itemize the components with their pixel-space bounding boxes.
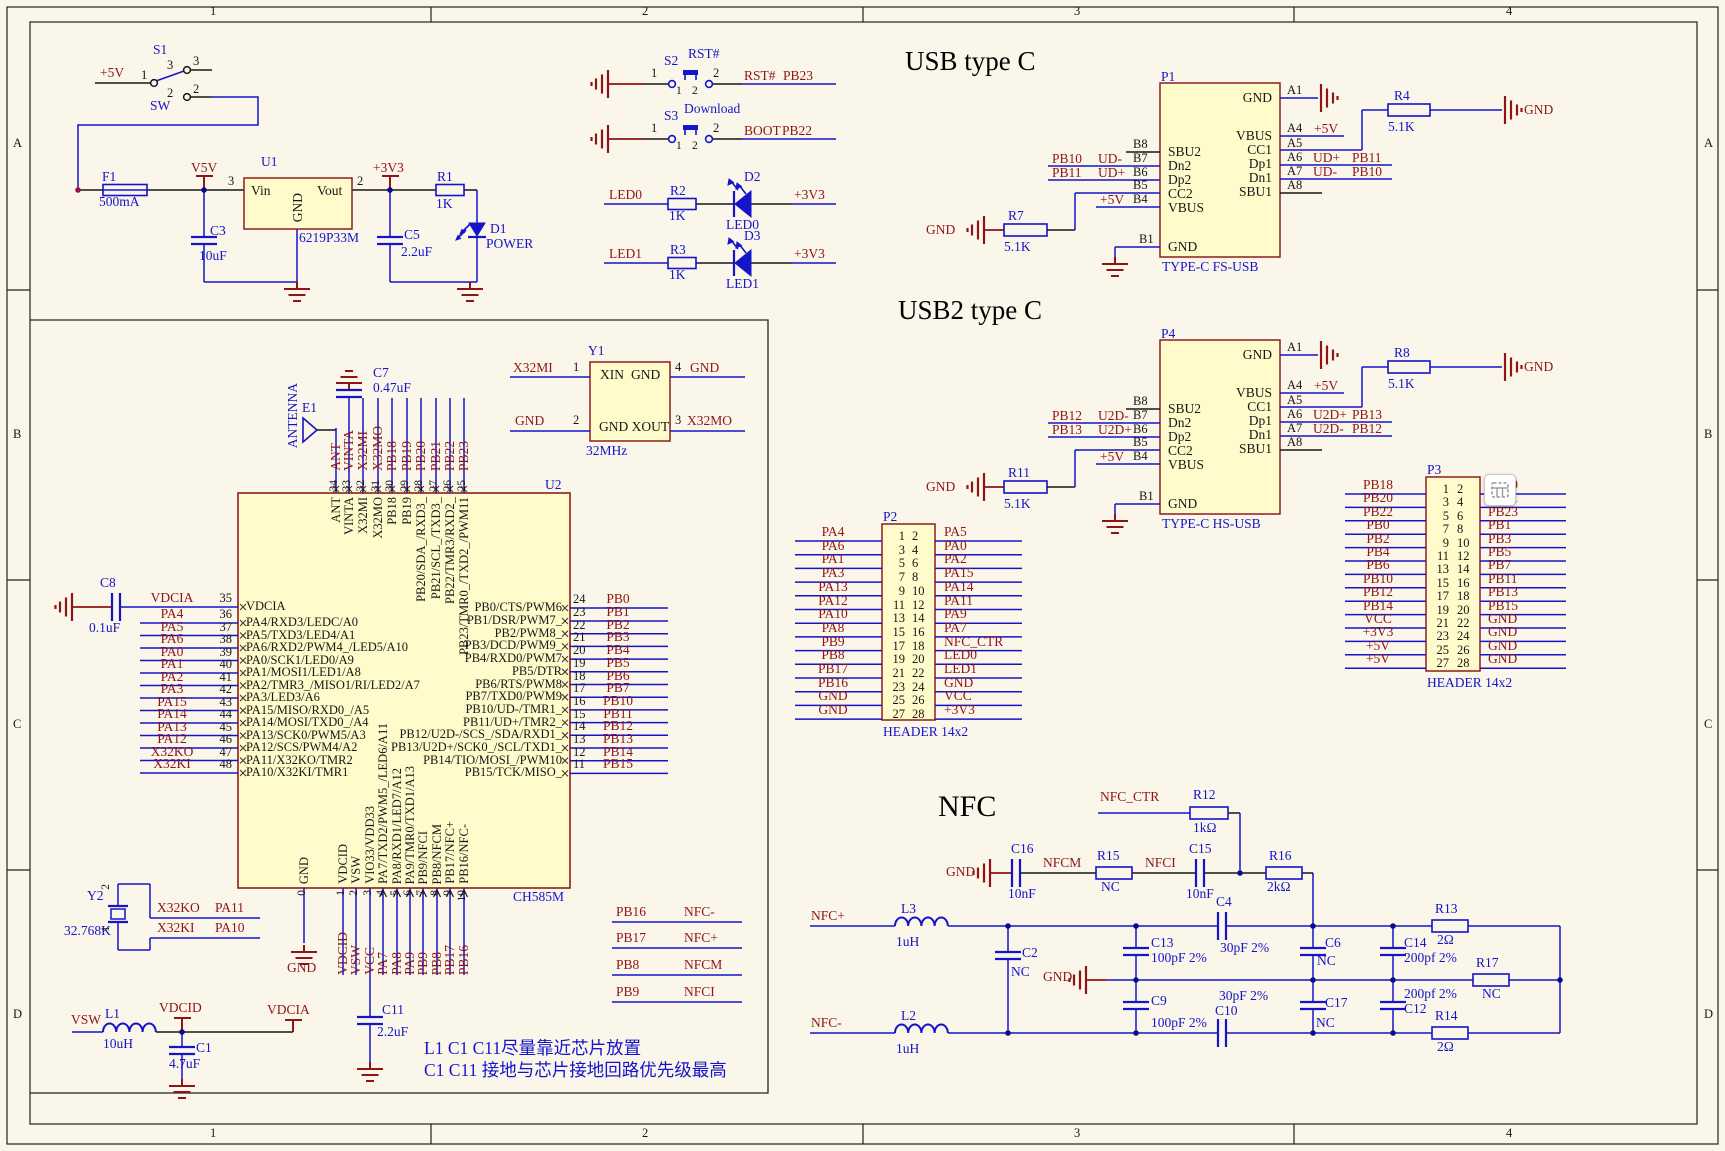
header-pin-number: 26: [912, 694, 932, 707]
net-label: 4: [1506, 5, 1512, 18]
power-v5v: V5V: [191, 161, 217, 175]
buttons-d3_ref: D3: [744, 229, 761, 243]
power-s1_p3o: 3: [193, 55, 199, 68]
header-net: PA12: [788, 594, 878, 608]
mcu-bottom-net: PB9: [416, 952, 430, 975]
schematic-page: USB type C USB2 type C NFC L1 C1 C11尽量靠近…: [0, 0, 1725, 1151]
nfc-c4_val: 30pF 2%: [1220, 941, 1269, 955]
net-label: B8: [1133, 395, 1148, 408]
nfc-r12_val: 1kΩ: [1193, 821, 1217, 835]
power-s1_p3i: 3: [167, 59, 173, 72]
mcu-pin-name: PB17/NFC+: [444, 821, 457, 884]
header-pin-number: 16: [1457, 577, 1477, 590]
mcu-pin-name: PA3/LED3/A6: [246, 691, 320, 704]
mcu-pin-number: 6: [403, 890, 415, 896]
nfc-c4_ref: C4: [1216, 895, 1232, 909]
mcu-pin-number: 18: [573, 670, 586, 683]
component-value: TYPE-C HS-USB: [1162, 517, 1261, 531]
nfc-c15_ref: C15: [1189, 842, 1212, 856]
mcu-pin-name: PB12/U2D-/SCS_/SDA/RXD1_: [320, 728, 562, 741]
net-label: A8: [1287, 179, 1302, 192]
usb-pin-name: SBU2: [1168, 402, 1201, 416]
header-net: +3V3: [1334, 625, 1422, 639]
net-label: PB11: [1052, 166, 1082, 180]
nfc-c14_ref: C14: [1404, 936, 1427, 950]
mcu-pin-name: X32MI: [357, 497, 370, 534]
header-pin-number: 9: [885, 585, 905, 598]
header-pin-number: 13: [885, 612, 905, 625]
mcu-bottom-net: VSW: [349, 945, 363, 975]
bl-gnd0: GND: [287, 961, 316, 975]
mcu-pin-name: VDCIA: [246, 600, 286, 613]
bl-y2_p1: 1: [101, 926, 113, 932]
mcu-pin-number: 4: [376, 890, 388, 896]
net-label: B: [1704, 428, 1712, 441]
mcu-pin-name: PB10/UD-/TMR1_: [320, 703, 562, 716]
net-label: PB13: [1352, 408, 1382, 422]
power-c5_ref: C5: [404, 228, 420, 242]
mcu-pin-number: 35: [198, 592, 232, 605]
mcu-pin-name: PB23/TMR0_/TXD2_/PWM11: [458, 497, 471, 655]
net-label: A6: [1287, 408, 1302, 421]
nfc-ctr: NFC_CTR: [1100, 790, 1159, 804]
buttons-led0_vcc: +3V3: [794, 188, 825, 202]
nfc-c9_val: 100pF 2%: [1151, 1016, 1207, 1030]
buttons-s3_ref: S3: [664, 109, 678, 123]
header-pin-number: 17: [885, 640, 905, 653]
buttons-d3_val: LED1: [726, 277, 759, 291]
component-value: 5.1K: [1388, 377, 1415, 391]
net-label: UD-: [1098, 152, 1122, 166]
bl-l1_ref: L1: [105, 1007, 120, 1021]
mcu-pin-number: 15: [573, 708, 586, 721]
nfc-c15_val: 10nF: [1186, 887, 1214, 901]
buttons-d2_ref: D2: [744, 170, 761, 184]
bl-y2_ref: Y2: [87, 889, 104, 903]
header-pin-number: 25: [1429, 644, 1449, 657]
net-label: NFC-: [684, 905, 715, 919]
mcu-pin-name: PB19: [401, 497, 414, 525]
net-label: PB13: [1052, 423, 1082, 437]
net-label: UD+: [1098, 166, 1125, 180]
component-value: HEADER 14x2: [883, 725, 968, 739]
nfc-nfcn: NFC-: [811, 1016, 842, 1030]
mcu-pin-name: PB6/RTS/PWM8: [320, 678, 562, 691]
bl-y2_p2: 2: [101, 884, 113, 890]
header-pin-number: 23: [1429, 630, 1449, 643]
nfc-section-title: NFC: [938, 792, 996, 822]
header-net: VCC: [944, 689, 972, 703]
header-pin-number: 15: [1429, 577, 1449, 590]
y1-ref: Y1: [588, 344, 605, 358]
nfc-r14_val: 2Ω: [1437, 1040, 1454, 1054]
mcu-pin-name: ANT: [330, 497, 343, 523]
net-label: UD-: [1313, 165, 1337, 179]
net-label: A6: [1287, 151, 1302, 164]
mcu-pin-number: 16: [573, 695, 586, 708]
net-label: PB9: [616, 985, 639, 999]
mcu-pin-name: PB20/SDA_/RXD3_: [415, 497, 428, 602]
mcu-pin-number: 31: [371, 480, 383, 492]
mcu-pin-name: PB0/CTS/PWM6: [320, 601, 562, 614]
bl-pa10: PA10: [215, 921, 245, 935]
mcu-pin-number: 48: [198, 758, 232, 771]
usb-pin-name: Dp1: [1200, 414, 1272, 428]
bl-pa11: PA11: [215, 901, 244, 915]
nfc-c12_ref: C12: [1404, 1002, 1427, 1016]
mcu-top-net: X32MO: [371, 426, 385, 471]
mcu-top-net: PB23: [457, 441, 471, 471]
component-ref: P1: [1161, 70, 1175, 84]
net-label: +5V: [1100, 193, 1124, 207]
power-u1_vout: Vout: [317, 184, 342, 198]
nfc-nfcm: NFCM: [1043, 856, 1081, 870]
mcu-pin-name: PB22/TMR3/RXD2_: [444, 497, 457, 604]
mcu-pin-name: PB15/TCK/MISO_: [320, 766, 562, 779]
buttons-r2_ref: R2: [670, 184, 686, 198]
mcu-top-net: PB18: [385, 441, 399, 471]
header-pin-number: 27: [885, 708, 905, 721]
mcu-pin-number: 22: [573, 619, 586, 632]
nfc-r15_ref: R15: [1097, 849, 1120, 863]
header-pin-number: 28: [912, 708, 932, 721]
header-pin-number: 3: [885, 544, 905, 557]
buttons-led0_net: LED0: [609, 188, 642, 202]
mcu-antenna: ANTENNA: [286, 383, 300, 448]
power-f1_val: 500mA: [99, 195, 140, 209]
component-value: 5.1K: [1004, 497, 1031, 511]
mcu-pin-number: 29: [400, 480, 412, 492]
mcu-pin-name: GND: [298, 857, 311, 884]
header-net: +5V: [1334, 652, 1422, 666]
buttons-s3_p1i: 1: [676, 141, 682, 153]
nfc-c13_val: 100pF 2%: [1151, 951, 1207, 965]
header-net: PA0: [944, 539, 967, 553]
mcu-pin-number: 11: [573, 758, 585, 771]
component-value: CH585M: [513, 890, 564, 904]
header-net: GND: [1488, 625, 1517, 639]
header-pin-number: 25: [885, 694, 905, 707]
header-pin-number: 18: [1457, 590, 1477, 603]
header-pin-number: 2: [912, 530, 932, 543]
nfc-c6_ref: C6: [1325, 936, 1341, 950]
net-label: 2: [642, 1127, 648, 1140]
mcu-pin-name: PB5/DTR: [320, 665, 562, 678]
mcu-pin-name: VINTA: [343, 497, 356, 535]
net-label: A: [13, 137, 22, 150]
grid-selection-icon[interactable]: [1484, 474, 1516, 506]
nfc-c17_val: NC: [1316, 1016, 1335, 1030]
usb-pin-name: SBU1: [1200, 442, 1272, 456]
header-net: +3V3: [944, 703, 975, 717]
usb-pin-name: VBUS: [1200, 129, 1272, 143]
buttons-s2_val: RST#: [688, 47, 720, 61]
header-pin-number: 17: [1429, 590, 1449, 603]
mcu-pin-name: PA9/TMR0/TXD1/A13: [404, 766, 417, 884]
component-ref: R7: [1008, 209, 1024, 223]
mcu-pin-name: PB21/SCL_/TXD3_: [430, 497, 443, 599]
net-label: A1: [1287, 84, 1302, 97]
nfc-r17_val: NC: [1482, 987, 1501, 1001]
net-label: PB16: [616, 905, 646, 919]
net-label: B5: [1133, 436, 1148, 449]
buttons-r3_val: 1K: [669, 268, 686, 282]
buttons-r2_val: 1K: [669, 209, 686, 223]
buttons-s2_p2: 2: [713, 67, 719, 80]
net-label: B1: [1139, 233, 1154, 246]
component-value: HEADER 14x2: [1427, 676, 1512, 690]
header-pin-number: 7: [885, 571, 905, 584]
buttons-s2_net2: PB23: [783, 69, 813, 83]
net-label: +5V: [1100, 450, 1124, 464]
mcu-pin-name: PB2/PWM8_: [320, 627, 562, 640]
net-label: PB12: [1052, 409, 1082, 423]
y1-n1: X32MI: [513, 361, 553, 375]
mcu-top-net: PB21: [429, 441, 443, 471]
power-u1_ref: U1: [261, 155, 278, 169]
mcu-pin-number: 12: [573, 746, 586, 759]
power-c5_val: 2.2uF: [401, 245, 432, 259]
net-label: C: [1704, 718, 1712, 731]
bl-c11_val: 2.2uF: [377, 1025, 408, 1039]
header-pin-number: 28: [1457, 657, 1477, 670]
header-pin-number: 6: [912, 557, 932, 570]
power-p3v3: +3V3: [373, 161, 404, 175]
power-u1_val: 6219P33M: [299, 231, 359, 245]
component-value: TYPE-C FS-USB: [1162, 260, 1258, 274]
mcu-pin-number: 1: [336, 890, 348, 896]
buttons-s2_net1: RST#: [744, 69, 776, 83]
header-pin-number: 20: [912, 653, 932, 666]
mcu-pin-name: PB13/U2D+/SCK0_/SCL/TXD1_: [320, 741, 562, 754]
usb2-section-title: USB2 type C: [898, 297, 1042, 324]
net-label: 3: [1074, 5, 1080, 18]
power-u1_vin: Vin: [251, 184, 270, 198]
mcu-c8_val: 0.1uF: [89, 621, 120, 635]
bl-vdcid: VDCID: [159, 1001, 202, 1015]
header-pin-number: 7: [1429, 523, 1449, 536]
usb-pin-name: Dp1: [1200, 157, 1272, 171]
y1-p1: 1: [573, 361, 579, 374]
header-net: PA10: [788, 607, 878, 621]
header-net: PA14: [944, 580, 974, 594]
header-pin-number: 22: [912, 667, 932, 680]
header-net: PB20: [1334, 491, 1422, 505]
mcu-top-net: PB22: [443, 441, 457, 471]
header-net: PA2: [944, 552, 967, 566]
header-pin-number: 24: [1457, 630, 1477, 643]
header-net: PB17: [788, 662, 878, 676]
nfc-r17_ref: R17: [1476, 956, 1499, 970]
mcu-c8_ref: C8: [100, 576, 116, 590]
component-ref: R4: [1394, 89, 1410, 103]
mcu-pin-name: PB3/DCD/PWM9_: [320, 639, 562, 652]
header-pin-number: 20: [1457, 604, 1477, 617]
power-c3_val: 10uF: [199, 249, 227, 263]
nfc-r15_val: NC: [1101, 880, 1120, 894]
net-label: B5: [1133, 179, 1148, 192]
nfc-nfci: NFCI: [1145, 856, 1176, 870]
mcu-c7_ref: C7: [373, 366, 389, 380]
usb1-section-title: USB type C: [905, 48, 1036, 75]
usb-pin-name: GND: [1168, 240, 1197, 254]
net-label: B4: [1133, 193, 1148, 206]
placement-note-line2: C1 C11 接地与芯片接地回路优先级最高: [424, 1062, 727, 1080]
mcu-pin-number: 9: [443, 890, 455, 896]
header-pin-number: 2: [1457, 483, 1477, 496]
placement-note-line1: L1 C1 C11尽量靠近芯片放置: [424, 1040, 641, 1058]
mcu-pin-number: 13: [573, 733, 586, 746]
mcu-pin-name: PB14/TIO/MOSI_/PWM10: [320, 754, 562, 767]
mcu-bottom-net: PB17: [443, 945, 457, 975]
mcu-pin-number: 10: [457, 890, 469, 902]
bl-l1_val: 10uH: [103, 1037, 133, 1051]
header-pin-number: 9: [1429, 537, 1449, 550]
net-label: A4: [1287, 379, 1302, 392]
header-pin-number: 4: [1457, 496, 1477, 509]
mcu-top-net: PB20: [414, 441, 428, 471]
header-pin-number: 21: [885, 667, 905, 680]
power-r1_ref: R1: [437, 170, 453, 184]
power-s1_ref: S1: [153, 43, 167, 57]
buttons-s3_net2: PB22: [782, 124, 812, 138]
mcu-pin-name: PB1/DSR/PWM7_: [320, 614, 562, 627]
net-label: A4: [1287, 122, 1302, 135]
mcu-pin-number: 20: [573, 644, 586, 657]
usb-pin-name: CC2: [1168, 444, 1193, 458]
power-u1_gnd: GND: [291, 193, 305, 222]
mcu-pin-name: VSW: [350, 856, 363, 884]
header-pin-number: 4: [912, 544, 932, 557]
usb-pin-name: Dn1: [1200, 428, 1272, 442]
header-pin-number: 21: [1429, 617, 1449, 630]
header-net: GND: [788, 689, 878, 703]
net-label: A: [1704, 137, 1713, 150]
usb-pin-name: VBUS: [1200, 386, 1272, 400]
header-net: PB6: [1334, 558, 1422, 572]
component-ref: U2: [545, 478, 562, 492]
header-pin-number: 8: [1457, 523, 1477, 536]
mcu-pin-number: 3: [363, 890, 375, 896]
buttons-led1_net: LED1: [609, 247, 642, 261]
header-net: GND: [944, 676, 973, 690]
header-net: PA13: [788, 580, 878, 594]
buttons-s2_p1: 1: [651, 67, 657, 80]
header-pin-number: 10: [1457, 537, 1477, 550]
header-net: PA11: [944, 594, 973, 608]
net-label: GND: [1524, 103, 1553, 117]
nfc-c10_ref: C10: [1215, 1004, 1238, 1018]
net-label: PB11: [1352, 151, 1382, 165]
header-pin-number: 1: [885, 530, 905, 543]
mcu-pin-name: PA7/TXD2/PWM5_/LED6/A11: [377, 723, 390, 884]
net-label: 4: [1506, 1127, 1512, 1140]
y1-n3: X32MO: [687, 414, 732, 428]
component-ref: P3: [1427, 463, 1441, 477]
usb-pin-name: GND: [1200, 91, 1272, 105]
mcu-top-net: VINTA: [342, 430, 356, 471]
net-label: +5V: [1314, 379, 1338, 393]
mcu-pin-number: 0: [297, 890, 309, 896]
mcu-pin-name: PB8/NFCM: [431, 824, 444, 884]
buttons-s3_p2: 2: [713, 122, 719, 135]
mcu-right-net: PB15: [582, 757, 654, 771]
mcu-pin-name: VIO33/VDD33: [364, 806, 377, 884]
buttons-s2_ref: S2: [664, 54, 678, 68]
header-net: PB8: [788, 648, 878, 662]
nfc-l2_ref: L2: [901, 1009, 916, 1023]
nfc-gnd2: GND: [1043, 970, 1072, 984]
power-s1_sw: SW: [150, 99, 170, 113]
net-label: A5: [1287, 137, 1302, 150]
power-s1_p1: 1: [141, 69, 147, 82]
power-u1_pin3: 3: [228, 175, 234, 188]
header-pin-number: 18: [912, 640, 932, 653]
net-label: U2D-: [1313, 422, 1344, 436]
buttons-s3_p1: 1: [651, 122, 657, 135]
power-r1_val: 1K: [436, 197, 453, 211]
header-net: LED0: [944, 648, 977, 662]
y1-p4: 4: [675, 361, 681, 374]
header-pin-number: 23: [885, 681, 905, 694]
net-label: PB10: [1052, 152, 1082, 166]
y1-n4: GND: [690, 361, 719, 375]
power-d1_ref: D1: [490, 222, 507, 236]
header-pin-number: 11: [1429, 550, 1449, 563]
usb-pin-name: Dn2: [1168, 416, 1191, 430]
header-pin-number: 14: [1457, 563, 1477, 576]
nfc-c2_ref: C2: [1022, 946, 1038, 960]
header-pin-number: 19: [885, 653, 905, 666]
y1-gndxout: GND XOUT: [599, 420, 669, 434]
net-label: NFCI: [684, 985, 715, 999]
net-label: PB12: [1352, 422, 1382, 436]
header-net: PB9: [788, 635, 878, 649]
header-pin-number: 19: [1429, 604, 1449, 617]
power-s1_p2o: 2: [193, 83, 199, 96]
nfc-c13_ref: C13: [1151, 936, 1174, 950]
mcu-pin-number: 23: [573, 606, 586, 619]
net-label: C: [13, 718, 21, 731]
net-label: B: [13, 428, 21, 441]
header-pin-number: 22: [1457, 617, 1477, 630]
mcu-pin-name: PA8/RXD1/LED7/A12: [391, 768, 404, 884]
buttons-s3_net1: BOOT: [744, 124, 781, 138]
buttons-led1_vcc: +3V3: [794, 247, 825, 261]
net-label: GND: [1524, 360, 1553, 374]
schematic-labels: USB type C USB2 type C NFC L1 C1 C11尽量靠近…: [0, 0, 1725, 1151]
header-pin-number: 13: [1429, 563, 1449, 576]
net-label: PB10: [1352, 165, 1382, 179]
net-label: B7: [1133, 409, 1148, 422]
nfc-c12_val: 200pf 2%: [1404, 987, 1457, 1001]
mcu-pin-name: X32MO: [372, 497, 385, 539]
nfc-r14_ref: R14: [1435, 1009, 1458, 1023]
buttons-s2_p2i: 2: [692, 86, 698, 98]
header-pin-number: 8: [912, 571, 932, 584]
net-label: A7: [1287, 165, 1302, 178]
mcu-pin-name: PB9/NFCI: [417, 831, 430, 885]
nfc-c10_val: 30pF 2%: [1219, 989, 1268, 1003]
nfc-l3_ref: L3: [901, 902, 916, 916]
nfc-c2_val: NC: [1011, 965, 1030, 979]
mcu-pin-number: 14: [573, 720, 586, 733]
mcu-pin-name: PB4/RXD0/PWM7: [320, 652, 562, 665]
header-pin-number: 5: [1429, 510, 1449, 523]
mcu-pin-number: 26: [443, 480, 455, 492]
header-pin-number: 24: [912, 681, 932, 694]
net-label: B8: [1133, 138, 1148, 151]
